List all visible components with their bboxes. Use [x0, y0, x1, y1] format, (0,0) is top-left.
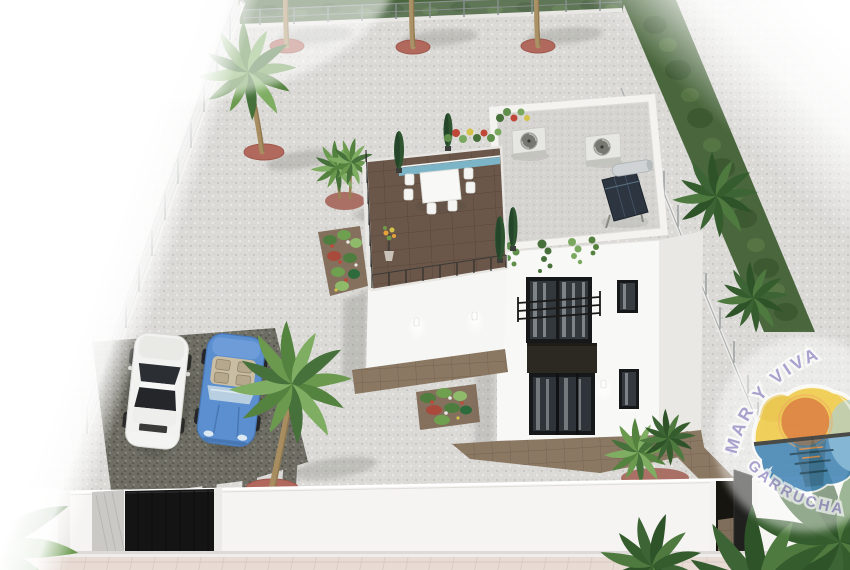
balcony-recess: [527, 343, 597, 373]
small-window-lower: [618, 369, 640, 412]
dining-table: [420, 169, 461, 203]
sliding-door: [529, 373, 595, 435]
vignette-top-right: [560, 0, 850, 290]
facade-wall-lamp: [595, 379, 613, 405]
flower-bed-front: [416, 384, 480, 430]
render-canvas: • MAR Y VIVA MAR Y VIVA GARRUCHA GARRUCH…: [0, 0, 850, 570]
ac-unit-1: [511, 127, 549, 161]
